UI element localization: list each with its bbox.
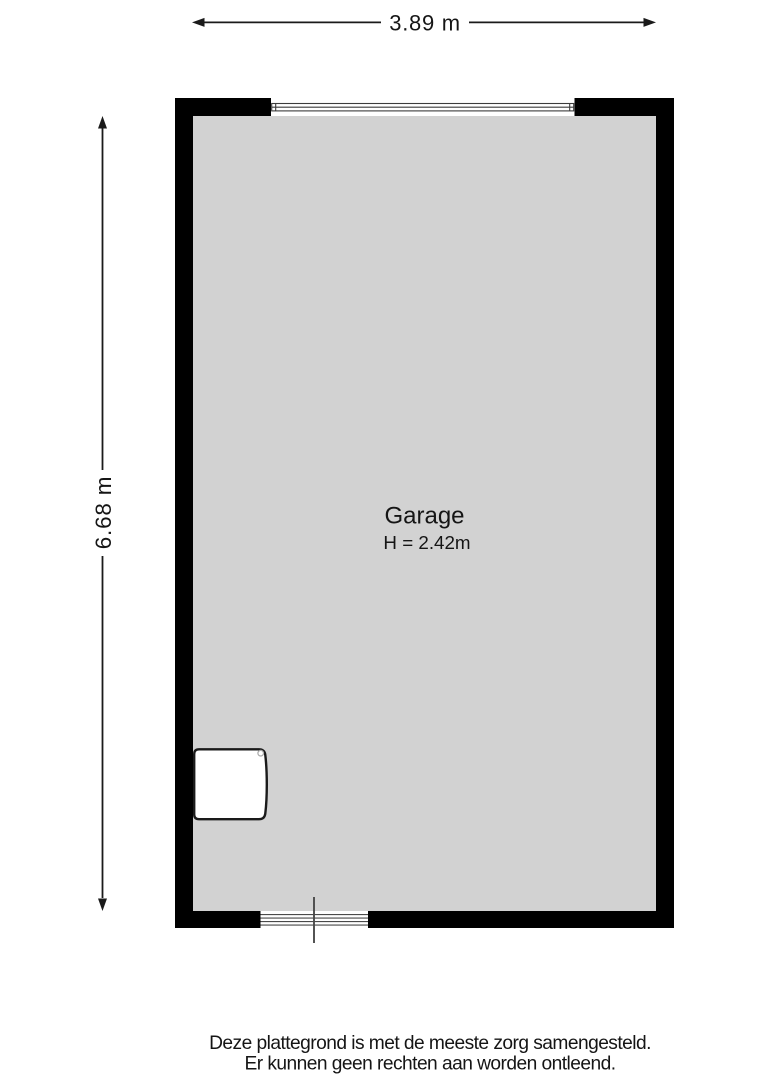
svg-text:3.89 m: 3.89 m bbox=[389, 11, 460, 36]
svg-text:6.68 m: 6.68 m bbox=[91, 476, 116, 550]
svg-text:Er kunnen geen rechten aan wor: Er kunnen geen rechten aan worden ontlee… bbox=[244, 1054, 615, 1075]
svg-text:H = 2.42m: H = 2.42m bbox=[383, 532, 470, 553]
svg-text:Deze plattegrond is met de mee: Deze plattegrond is met de meeste zorg s… bbox=[209, 1033, 651, 1054]
svg-text:Garage: Garage bbox=[384, 502, 464, 529]
